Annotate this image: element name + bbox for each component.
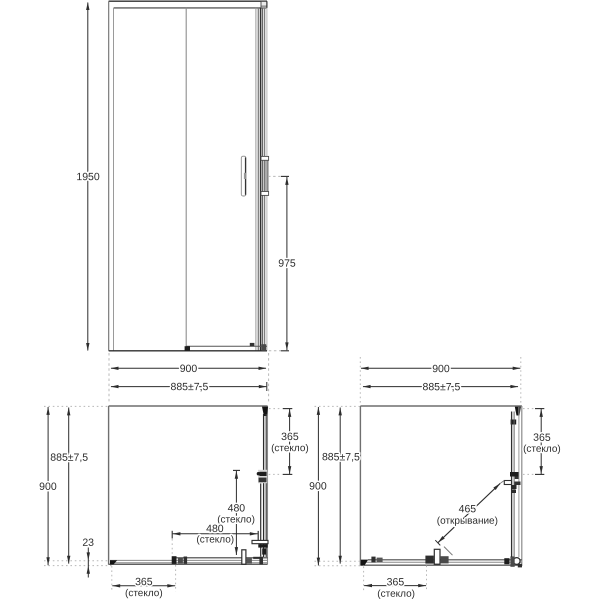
svg-text:(стекло): (стекло): [377, 589, 415, 600]
svg-text:885±7,5: 885±7,5: [171, 381, 209, 393]
svg-text:(стекло): (стекло): [271, 443, 309, 454]
svg-text:365: 365: [533, 432, 551, 444]
svg-text:465: 465: [459, 503, 477, 515]
svg-text:900: 900: [432, 363, 450, 375]
svg-text:(стекло): (стекло): [196, 534, 234, 545]
svg-text:365: 365: [387, 576, 405, 588]
svg-text:885±7,5: 885±7,5: [50, 452, 88, 464]
svg-text:900: 900: [309, 481, 327, 493]
svg-text:900: 900: [180, 363, 198, 375]
svg-text:480: 480: [206, 523, 224, 535]
svg-text:(стекло): (стекло): [523, 444, 561, 455]
svg-text:480: 480: [228, 503, 246, 515]
svg-text:365: 365: [281, 431, 299, 443]
svg-text:(открывание): (открывание): [437, 516, 498, 527]
svg-text:885±7,5: 885±7,5: [322, 451, 360, 463]
svg-text:1950: 1950: [76, 171, 100, 183]
svg-text:975: 975: [278, 258, 296, 270]
svg-text:885±7,5: 885±7,5: [423, 381, 461, 393]
svg-text:365: 365: [135, 576, 153, 588]
svg-text:(стекло): (стекло): [125, 588, 163, 599]
svg-text:23: 23: [82, 537, 94, 549]
svg-text:900: 900: [39, 481, 57, 493]
